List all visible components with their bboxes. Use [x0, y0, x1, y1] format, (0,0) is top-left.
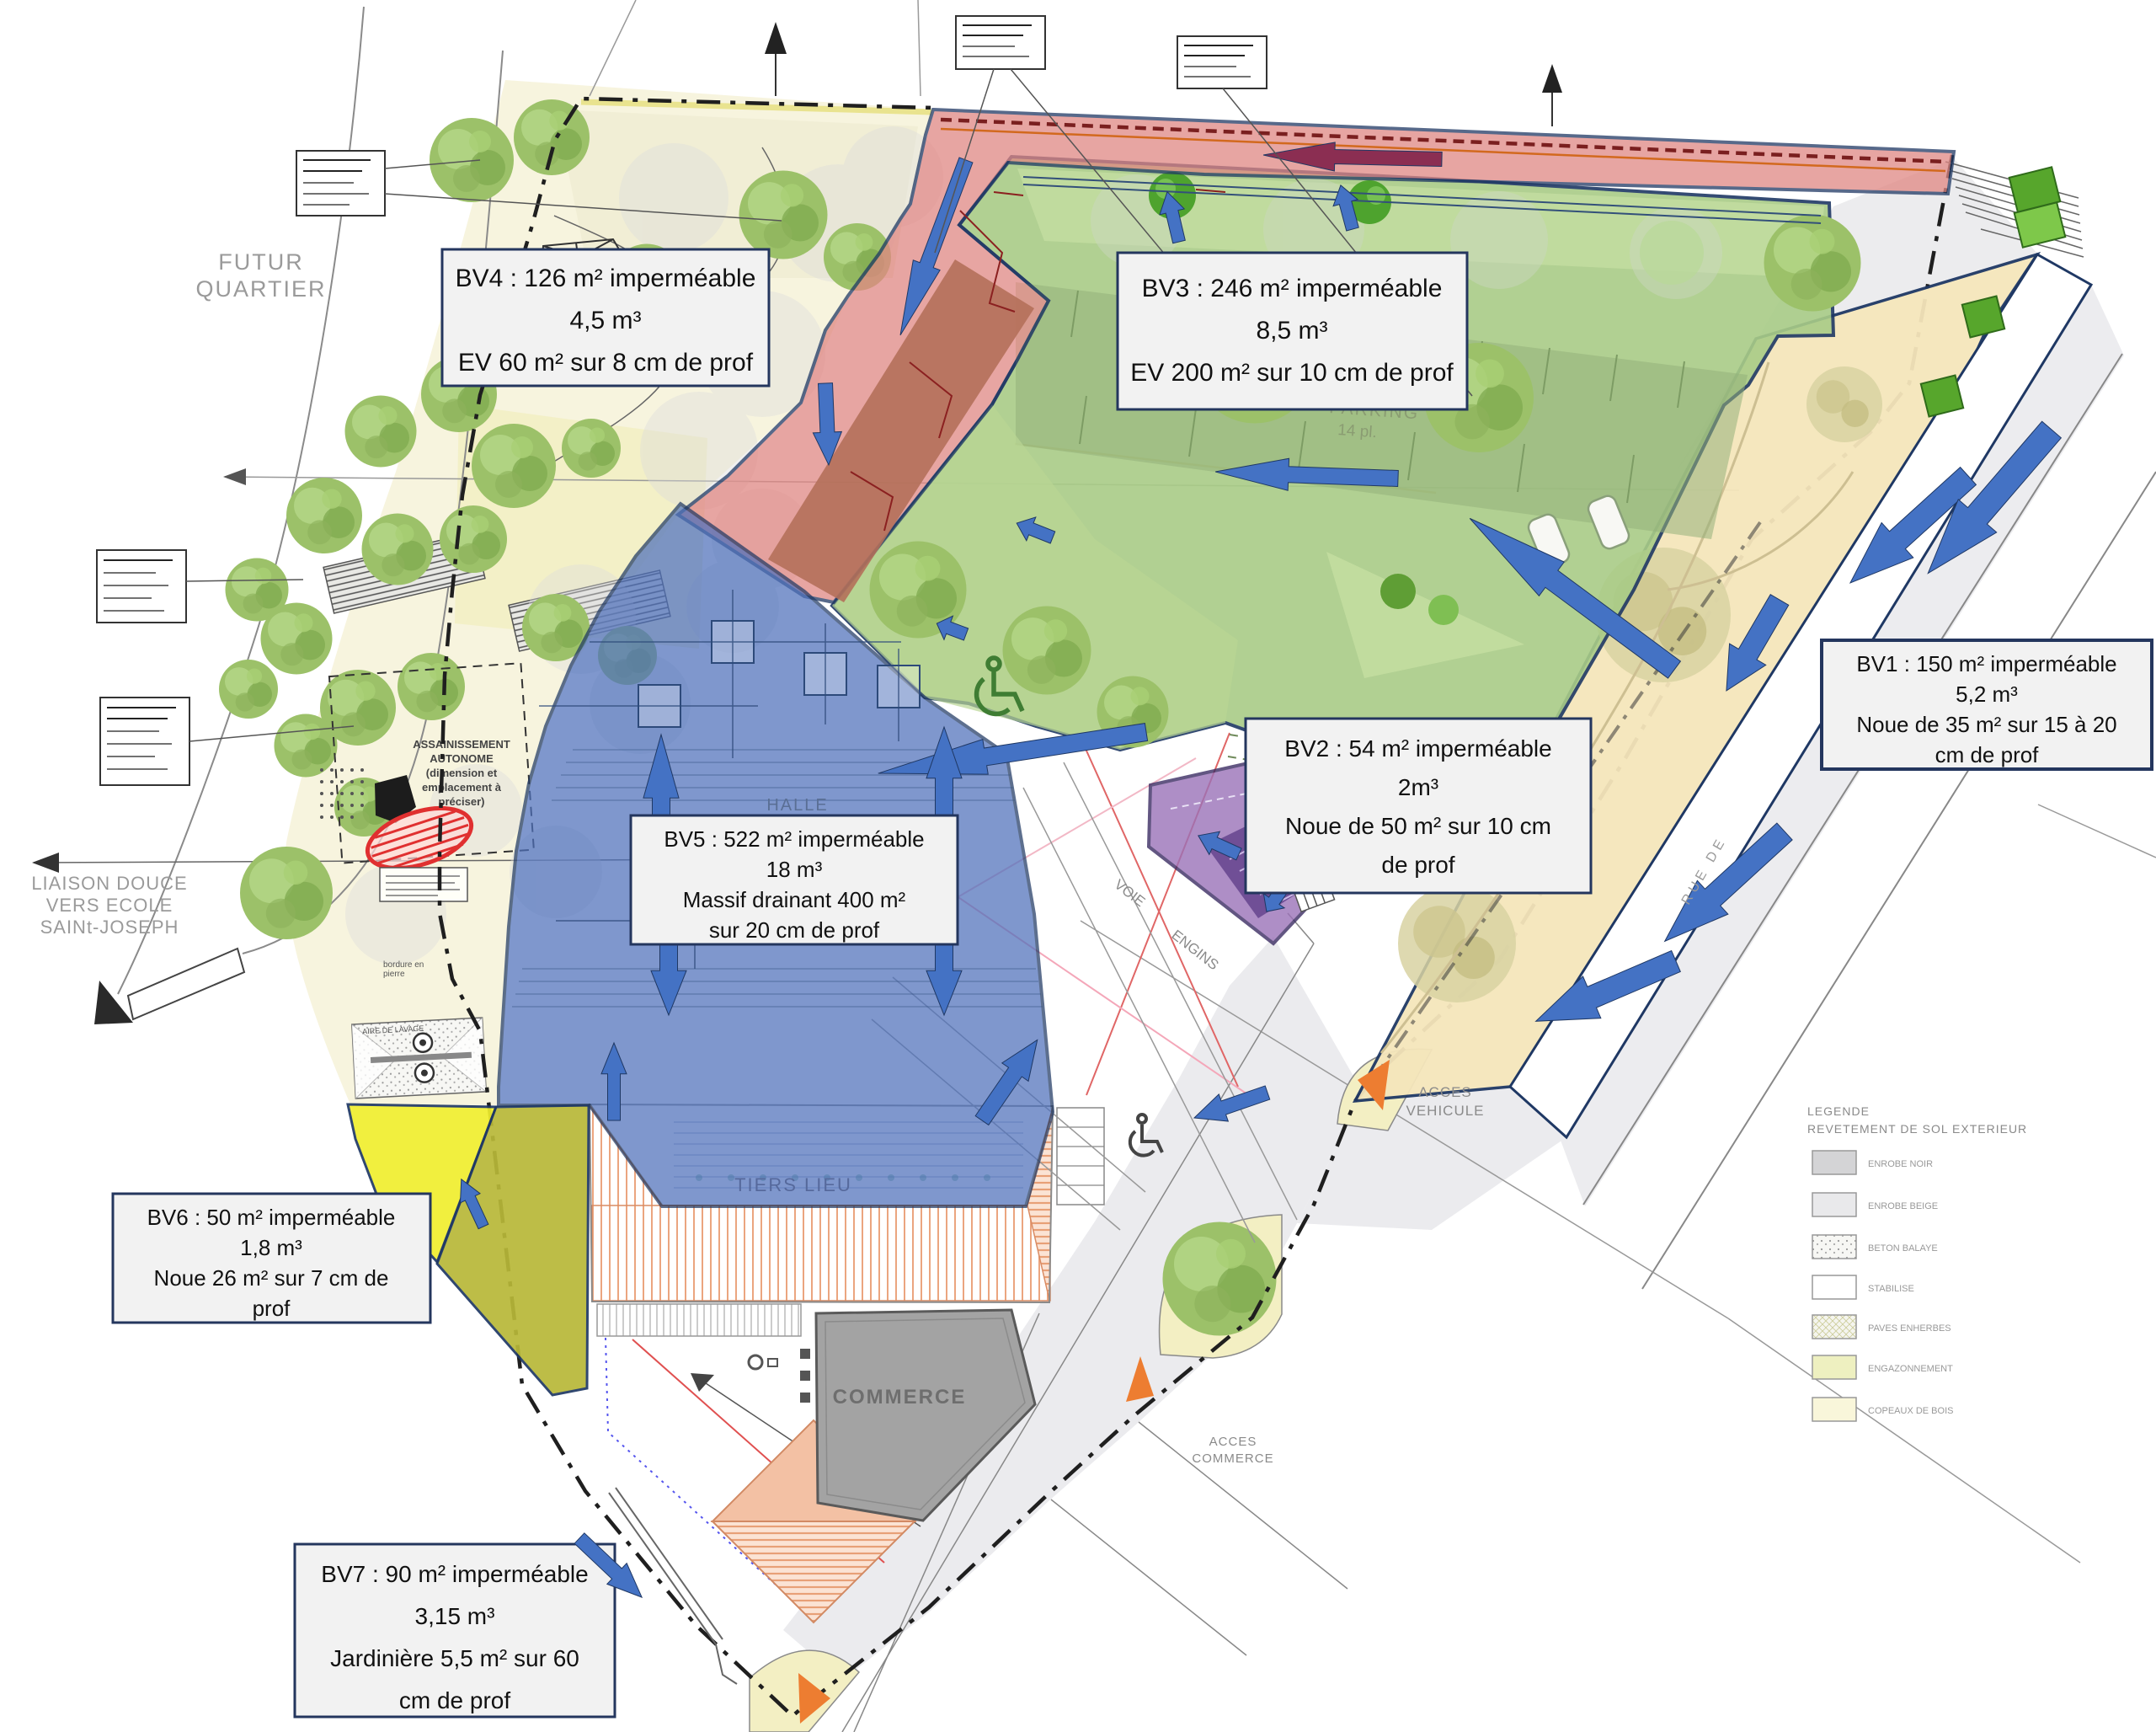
svg-text:14 pl.: 14 pl. [1337, 421, 1378, 441]
svg-text:FUTUR: FUTUR [218, 249, 303, 275]
svg-text:prof: prof [253, 1296, 291, 1321]
svg-text:pierre: pierre [383, 970, 405, 979]
svg-text:cm de prof: cm de prof [1935, 742, 2040, 767]
svg-text:BV4 : 126 m² imperméable: BV4 : 126 m² imperméable [456, 265, 756, 292]
svg-text:3,15 m³: 3,15 m³ [415, 1603, 495, 1629]
svg-text:VEHICULE: VEHICULE [1406, 1103, 1484, 1119]
svg-text:ACCES: ACCES [1418, 1084, 1472, 1100]
svg-text:sur 20 cm de prof: sur 20 cm de prof [709, 917, 880, 943]
svg-text:18 m³: 18 m³ [766, 857, 823, 882]
svg-text:8,5 m³: 8,5 m³ [1256, 317, 1327, 345]
svg-text:5,2 m³: 5,2 m³ [1956, 682, 2018, 707]
svg-text:BV2 : 54 m² imperméable: BV2 : 54 m² imperméable [1284, 735, 1551, 762]
svg-text:VERS ECOLE: VERS ECOLE [46, 895, 173, 916]
svg-text:4,5 m³: 4,5 m³ [569, 307, 641, 334]
svg-text:EV 60 m² sur 8 cm de prof: EV 60 m² sur 8 cm de prof [458, 349, 754, 377]
svg-text:QUARTIER: QUARTIER [195, 276, 326, 302]
svg-text:2m³: 2m³ [1398, 774, 1438, 800]
svg-text:Noue de 35 m² sur 15 à 20: Noue de 35 m² sur 15 à 20 [1856, 712, 2116, 737]
svg-text:BV5 : 522 m² imperméable: BV5 : 522 m² imperméable [664, 826, 924, 852]
svg-text:ENROBE NOIR: ENROBE NOIR [1868, 1159, 1933, 1169]
svg-text:COMMERCE: COMMERCE [1192, 1451, 1273, 1466]
svg-text:STABILISE: STABILISE [1868, 1284, 1914, 1294]
svg-text:COMMERCE: COMMERCE [833, 1386, 967, 1409]
svg-text:AUTONOME: AUTONOME [430, 752, 494, 765]
svg-text:BETON BALAYE: BETON BALAYE [1868, 1243, 1938, 1254]
svg-text:préciser): préciser) [439, 795, 485, 808]
svg-text:COPEAUX DE BOIS: COPEAUX DE BOIS [1868, 1406, 1953, 1416]
svg-text:LIAISON DOUCE: LIAISON DOUCE [31, 873, 187, 894]
svg-text:(dimension et: (dimension et [426, 767, 498, 779]
svg-text:BV1 : 150 m² imperméable: BV1 : 150 m² imperméable [1856, 651, 2116, 676]
svg-text:SAINt-JOSEPH: SAINt-JOSEPH [40, 917, 179, 938]
svg-text:1,8 m³: 1,8 m³ [240, 1235, 302, 1260]
svg-text:LEGENDE: LEGENDE [1807, 1104, 1870, 1118]
svg-text:ASSAINISSEMENT: ASSAINISSEMENT [413, 738, 510, 751]
svg-text:BV3 : 246 m² imperméable: BV3 : 246 m² imperméable [1142, 275, 1443, 302]
svg-text:BV7 : 90 m² imperméable: BV7 : 90 m² imperméable [321, 1561, 588, 1587]
svg-text:EV 200 m² sur 10 cm de prof: EV 200 m² sur 10 cm de prof [1130, 359, 1454, 387]
svg-text:REVETEMENT DE SOL EXTERIEUR: REVETEMENT DE SOL EXTERIEUR [1807, 1122, 2027, 1136]
svg-text:cm de prof: cm de prof [399, 1687, 510, 1713]
svg-text:ENROBE BEIGE: ENROBE BEIGE [1868, 1201, 1938, 1211]
svg-text:TIERS LIEU: TIERS LIEU [734, 1174, 852, 1195]
svg-text:ENGAZONNEMENT: ENGAZONNEMENT [1868, 1364, 1953, 1374]
svg-text:Jardinière 5,5 m² sur 60: Jardinière 5,5 m² sur 60 [330, 1645, 579, 1671]
svg-text:Noue de 50 m² sur 10 cm: Noue de 50 m² sur 10 cm [1285, 813, 1551, 839]
svg-text:BV6 : 50 m² imperméable: BV6 : 50 m² imperméable [147, 1205, 396, 1230]
svg-text:de prof: de prof [1381, 852, 1454, 878]
svg-text:HALLE: HALLE [766, 796, 828, 815]
svg-text:bordure en: bordure en [383, 960, 424, 970]
svg-text:emplacement à: emplacement à [422, 781, 502, 794]
svg-text:Noue 26 m² sur 7 cm de: Noue 26 m² sur 7 cm de [154, 1265, 389, 1291]
svg-text:PAVES ENHERBES: PAVES ENHERBES [1868, 1323, 1951, 1334]
svg-text:ACCES: ACCES [1209, 1435, 1257, 1449]
svg-text:Massif drainant 400 m²: Massif drainant 400 m² [683, 887, 906, 912]
